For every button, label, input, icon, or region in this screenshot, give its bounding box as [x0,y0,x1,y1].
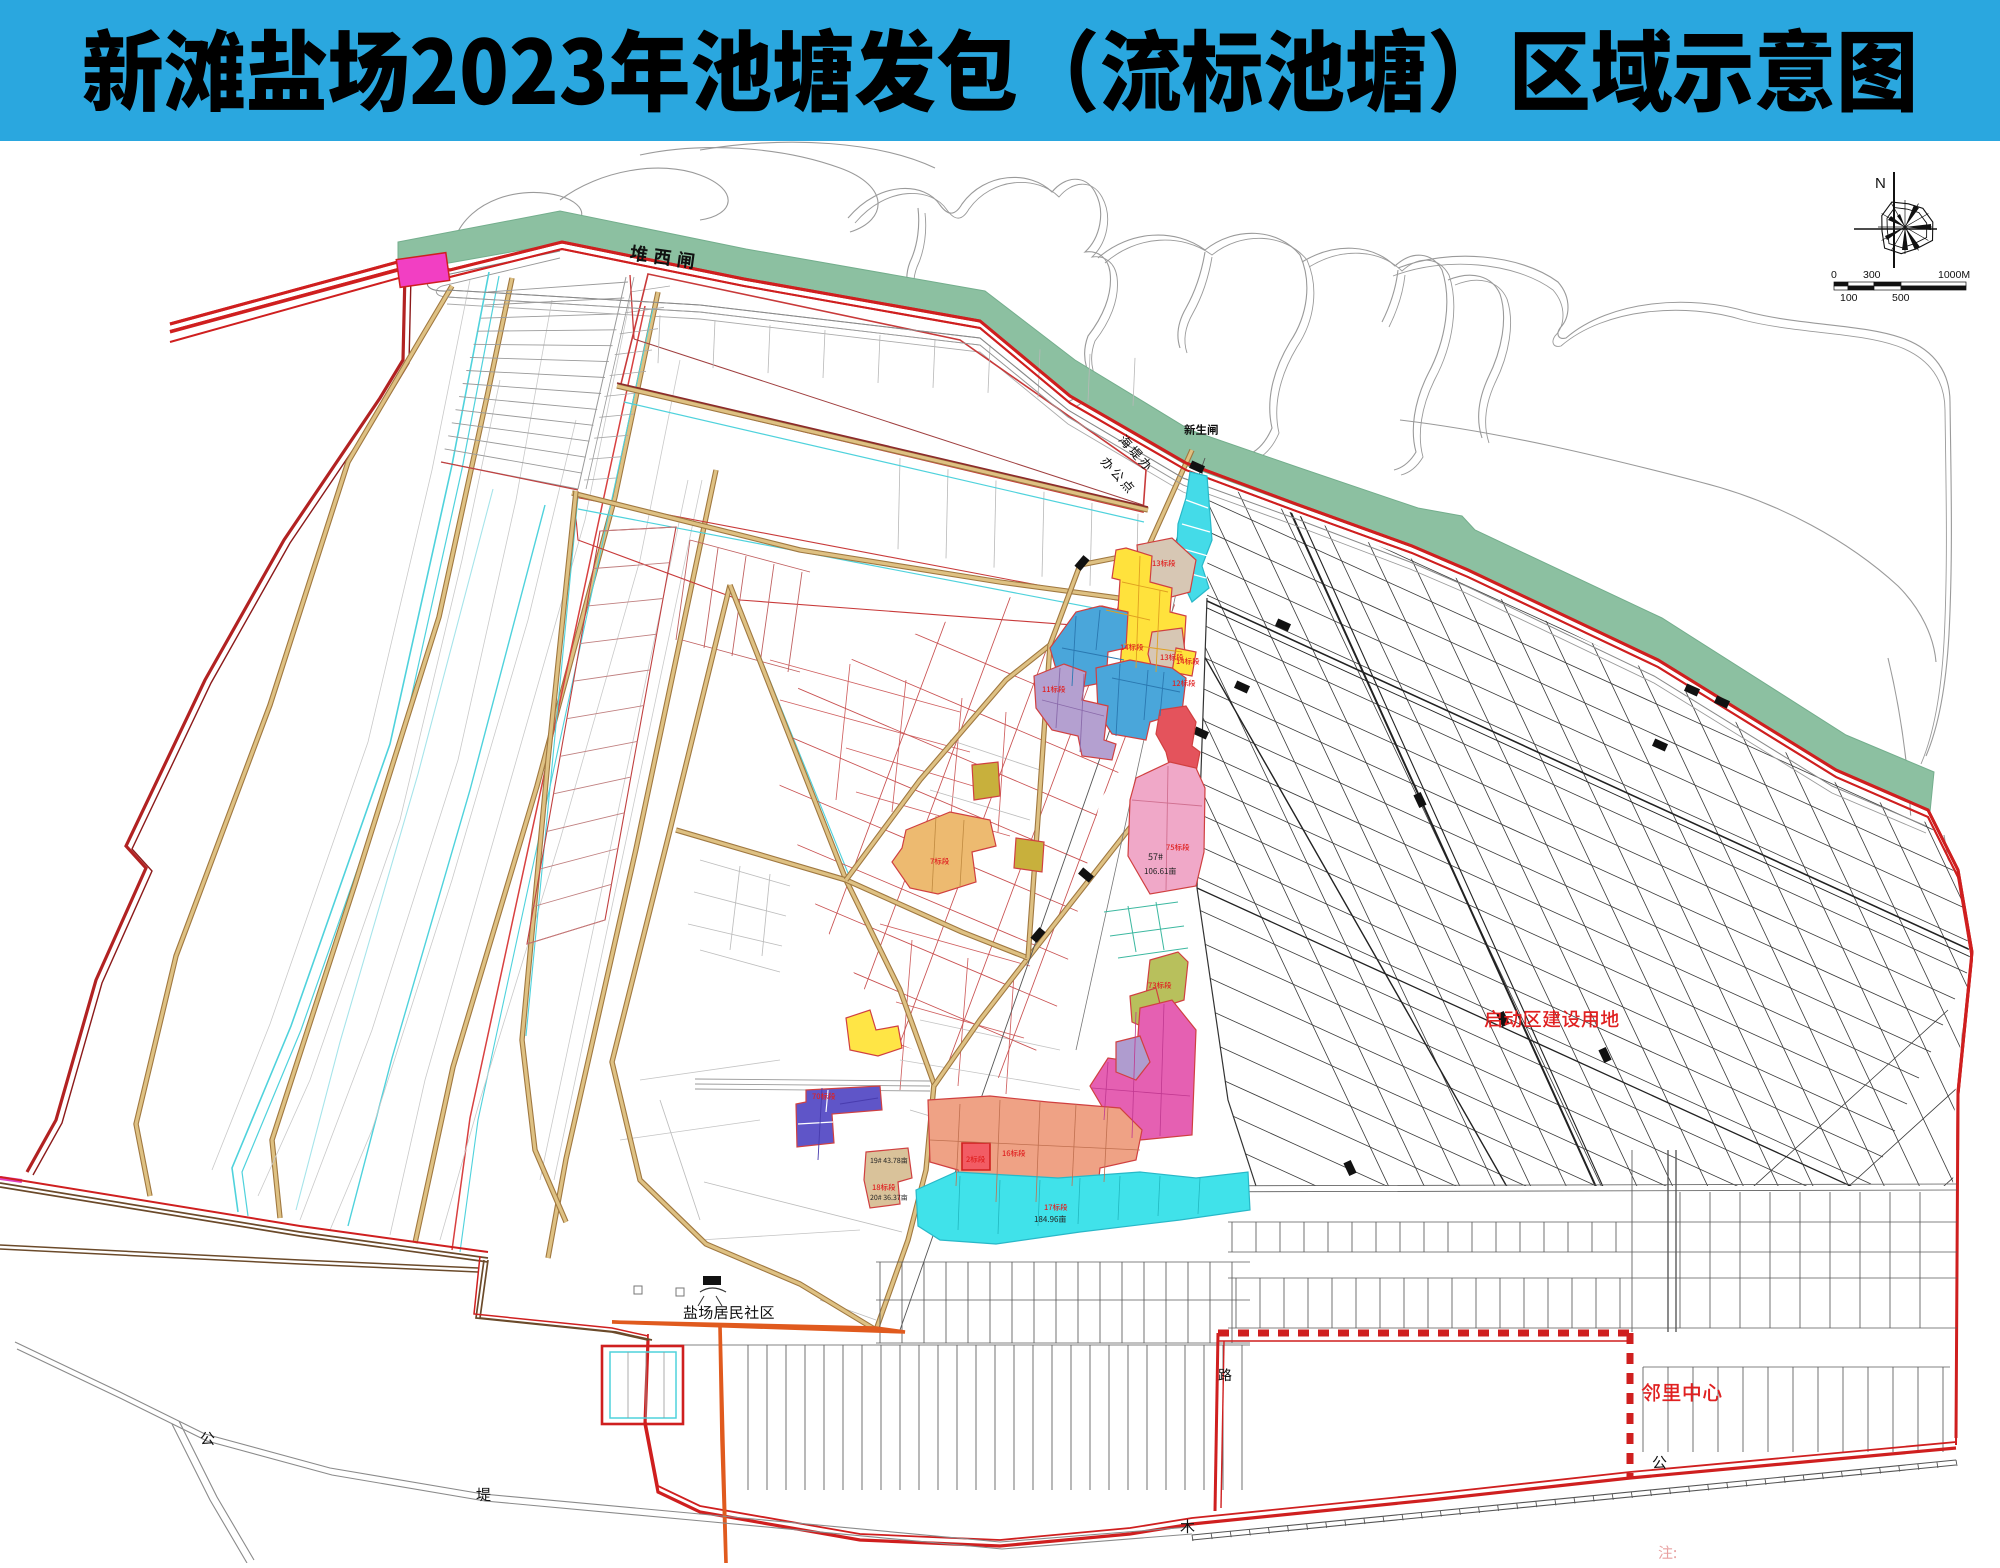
svg-text:N: N [1875,175,1886,192]
svg-text:1000M: 1000M [1938,269,1970,281]
svg-text:300: 300 [1863,269,1881,281]
svg-text:0: 0 [1831,269,1837,281]
svg-text:500: 500 [1892,292,1910,304]
svg-text:100: 100 [1840,292,1858,304]
